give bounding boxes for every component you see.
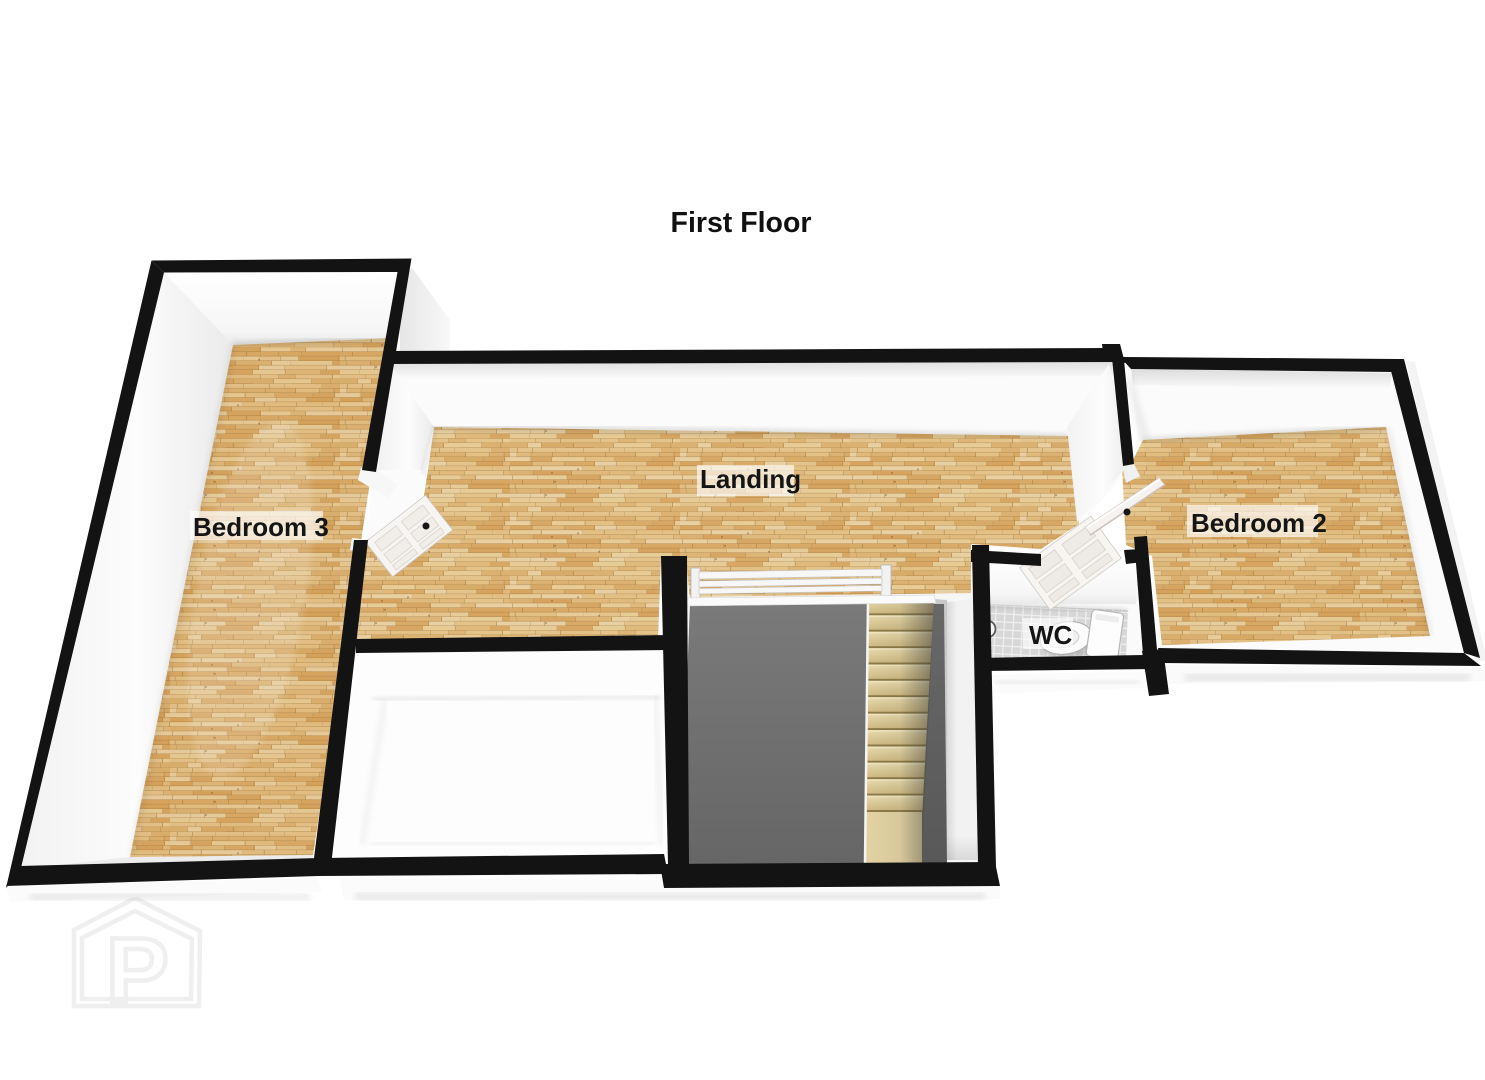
svg-text:P: P xyxy=(106,918,169,1023)
svg-text:Bedroom 2: Bedroom 2 xyxy=(1191,508,1327,538)
svg-text:WC: WC xyxy=(1029,620,1073,650)
svg-text:Bedroom 3: Bedroom 3 xyxy=(193,512,329,542)
svg-text:Landing: Landing xyxy=(700,464,801,494)
svg-text:First Floor: First Floor xyxy=(671,207,812,239)
